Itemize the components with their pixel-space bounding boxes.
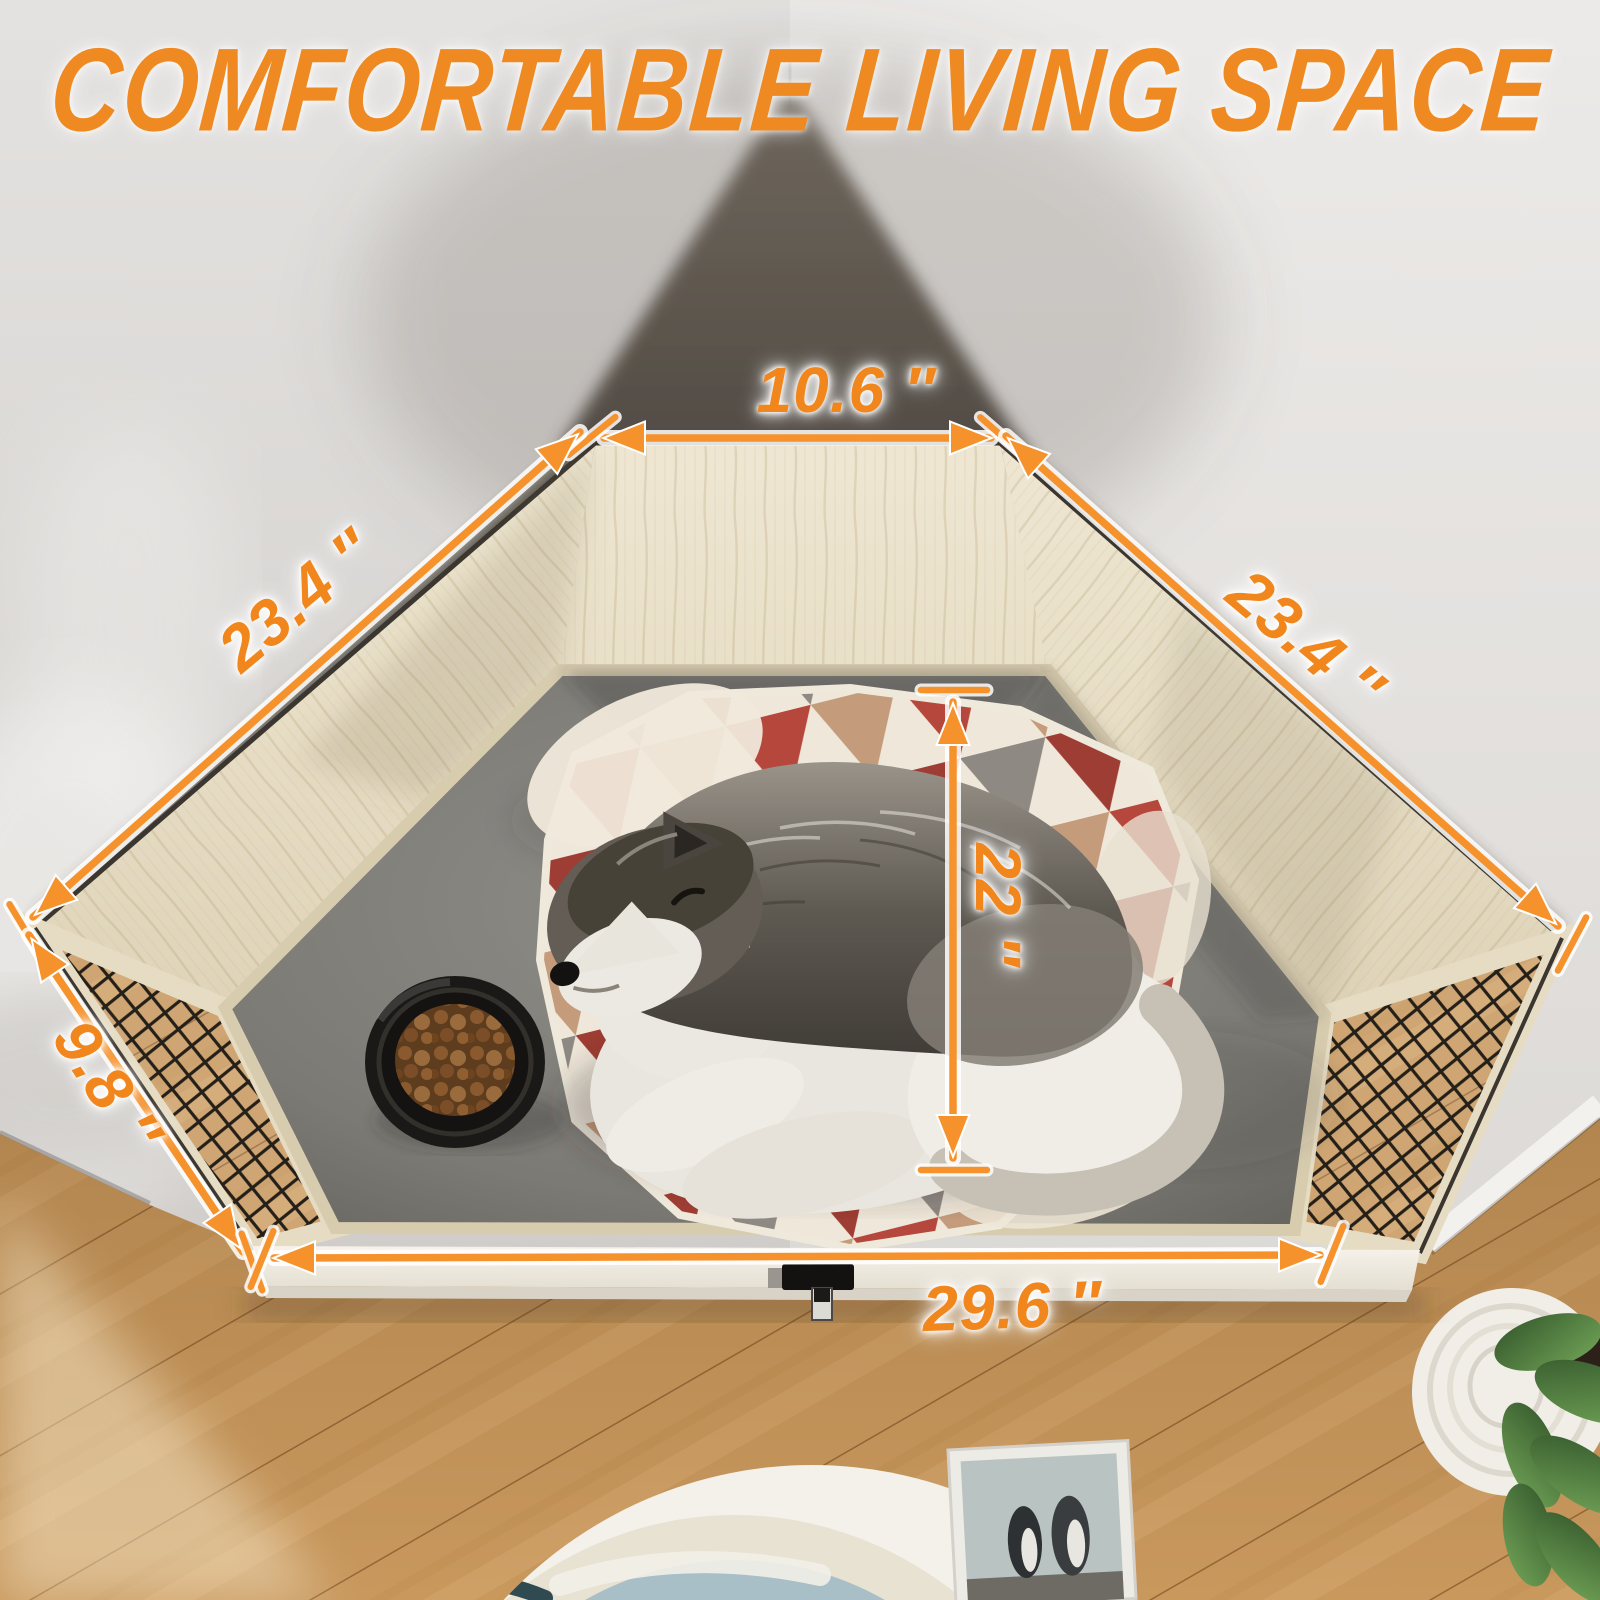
scene-illustration xyxy=(0,0,1600,1600)
dim-label-interior-depth: 22 ″ xyxy=(961,843,1035,967)
back-panel xyxy=(560,443,1048,670)
kibble xyxy=(395,1004,515,1116)
dim-label-back-width: 10.6 ″ xyxy=(757,353,936,427)
photo-frame xyxy=(948,1441,1136,1600)
room-scene: COMFORTABLE LIVING SPACE 10.6 ″ 23.4 ″ 2… xyxy=(0,0,1600,1600)
page-title: COMFORTABLE LIVING SPACE xyxy=(0,22,1600,159)
dim-label-front-width: 29.6 ″ xyxy=(921,1266,1102,1346)
